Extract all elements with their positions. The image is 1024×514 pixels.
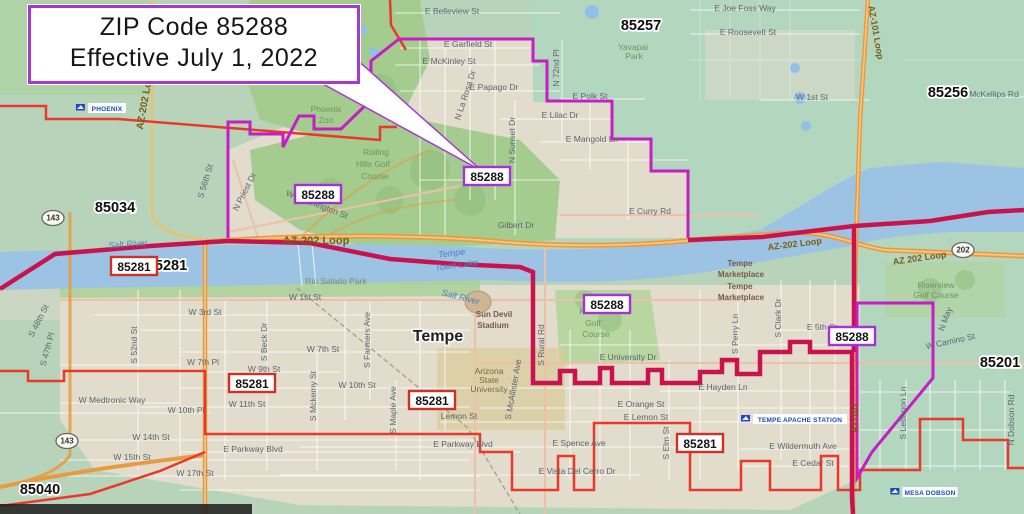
street-label: E Polk St (573, 91, 609, 101)
bottom-edge-strip (0, 504, 252, 514)
postal-station: TEMPE APACHE STATION (741, 414, 847, 424)
zip-badge-text: 85281 (235, 377, 269, 391)
park-label: Golf Course (913, 290, 959, 300)
street-label: E Papago Dr (470, 82, 519, 92)
street-label: W 3rd St (188, 307, 222, 317)
zip-code-label: 85034 (95, 200, 135, 216)
park-label: Golf (585, 318, 601, 328)
street-label: Gilbert Dr (498, 220, 535, 230)
place-label: Tempe (727, 259, 753, 268)
street-label: E Mangold Ln (566, 134, 619, 144)
university-label: University (470, 384, 508, 394)
street-label: E Roosevelt St (720, 27, 777, 37)
callout-line1: ZIP Code 85288 (31, 12, 357, 43)
street-label: W 17th St (176, 468, 214, 478)
street-label: Lemon St (441, 411, 478, 421)
zip-badge-text: 85288 (590, 298, 624, 312)
street-label: E Garfield St (444, 39, 493, 49)
street-label: W 15th St (113, 452, 151, 462)
street-label: E Hayden Ln (698, 382, 747, 392)
street-label: W Medtronic Way (79, 395, 147, 405)
park-label: Park (625, 51, 643, 61)
street-label: S Beck Dr (259, 323, 269, 361)
shield-number: 143 (60, 437, 74, 446)
street-label: N 72nd Pl (551, 49, 561, 86)
park-label: Rolling (363, 147, 389, 157)
park-label: Hills Golf (356, 159, 391, 169)
zip-badge-85281: 85281 (677, 434, 723, 452)
street-label: E McKinley St (423, 56, 477, 66)
street-label: S Clark Dr (773, 298, 783, 337)
street-label: E Joe Foss Way (714, 3, 776, 13)
street-label: E Wildermuth Ave (769, 441, 837, 451)
highway-label: AZ-101 (849, 403, 860, 433)
street-label: E Vista Del Cerro Dr (539, 466, 616, 476)
city-label: Tempe (413, 328, 463, 345)
zip-badge-text: 85288 (470, 170, 504, 184)
zip-badge-85281: 85281 (111, 257, 157, 275)
zip-code-label: 85040 (20, 482, 60, 498)
place-label: Marketplace (718, 293, 765, 302)
park-label: Phoenix (311, 104, 342, 114)
street-label: E Lemon St (624, 412, 669, 422)
zip-badge-text: 85288 (301, 188, 335, 202)
street-label: W 11th St (229, 399, 266, 409)
zip-code-label: 85256 (928, 85, 968, 101)
street-label: E University Dr (600, 352, 657, 362)
highway-shield: 143 (56, 434, 78, 449)
street-label: S Rural Rd (536, 324, 546, 366)
street-label: W 7th Pl (187, 357, 219, 367)
zip-badge-text: 85288 (835, 330, 869, 344)
highway-label: AZ-202 Loop (283, 235, 350, 247)
street-label: E Parkway Blvd (433, 439, 493, 449)
highway-shield: 202 (952, 243, 974, 258)
zip-code-label: 85257 (621, 18, 661, 34)
park-label: Riverview (918, 280, 956, 290)
zip-badge-text: 85281 (117, 260, 151, 274)
place-label: Stadium (477, 321, 509, 330)
street-label: W 1st St (796, 92, 829, 102)
street-label: E Belleview St (425, 6, 480, 16)
title-callout: ZIP Code 85288 Effective July 1, 2022 (28, 5, 360, 84)
street-label: W 10th St (338, 380, 376, 390)
street-label: S Perry Ln (730, 314, 740, 354)
highway-shield: 143 (42, 211, 64, 226)
street-label: E Orange St (618, 399, 665, 409)
shield-number: 202 (956, 246, 970, 255)
street-label: N Sunset Dr (507, 117, 517, 163)
street-label: S Farmers Ave (362, 312, 372, 368)
zip-badge-85288: 85288 (295, 185, 341, 203)
place-label: Sun Devil (476, 310, 512, 319)
park-label: Course (582, 329, 610, 339)
street-label: S Mckemy St (308, 370, 318, 421)
zip-badge-text: 85281 (415, 394, 449, 408)
street-label: W 1st St (289, 292, 322, 302)
street-label: E Cedar St (792, 458, 834, 468)
street-label: W 10th Pl (168, 405, 205, 415)
street-label: E Lilac Dr (542, 110, 579, 120)
street-label: E Spence Ave (552, 438, 606, 448)
postal-station-name: MESA DOBSON (904, 490, 955, 497)
street-label: E McKellips Rd (961, 89, 1019, 99)
street-label: S Elm St (661, 426, 671, 460)
place-label: Marketplace (718, 270, 765, 279)
park-label: Course (361, 171, 389, 181)
park-label: Zoo (319, 115, 334, 125)
street-label: E Parkway Blvd (223, 444, 283, 454)
street-label: W 9th St (248, 364, 281, 374)
zip-badge-85288: 85288 (829, 327, 875, 345)
place-label: Tempe (727, 282, 753, 291)
street-label: W 14th St (132, 432, 170, 442)
street-label: E Curry Rd (629, 206, 671, 216)
callout-line2: Effective July 1, 2022 (31, 43, 357, 74)
zip-badge-85288: 85288 (464, 167, 510, 185)
zip-badge-85288: 85288 (584, 295, 630, 313)
zip-badge-85281: 85281 (229, 374, 275, 392)
street-label: S Maple Ave (388, 386, 398, 434)
zip-badge-85281: 85281 (409, 391, 455, 409)
postal-station-name: PHOENIX (92, 106, 123, 113)
park-label: Rio Salado Park (305, 276, 367, 286)
street-label: S 52nd St (129, 326, 139, 364)
zip-code-map: E Belleview StE Joe Foss WayE Roosevelt … (0, 0, 1024, 514)
street-label: N Dobson Rd (1006, 394, 1016, 445)
postal-station-name: TEMPE APACHE STATION (758, 417, 842, 424)
street-label: W 7th St (307, 344, 340, 354)
shield-number: 143 (46, 214, 60, 223)
street-label: S Lebanon Ln (898, 386, 908, 439)
zip-code-label: 85201 (980, 355, 1020, 371)
zip-badge-text: 85281 (683, 437, 717, 451)
